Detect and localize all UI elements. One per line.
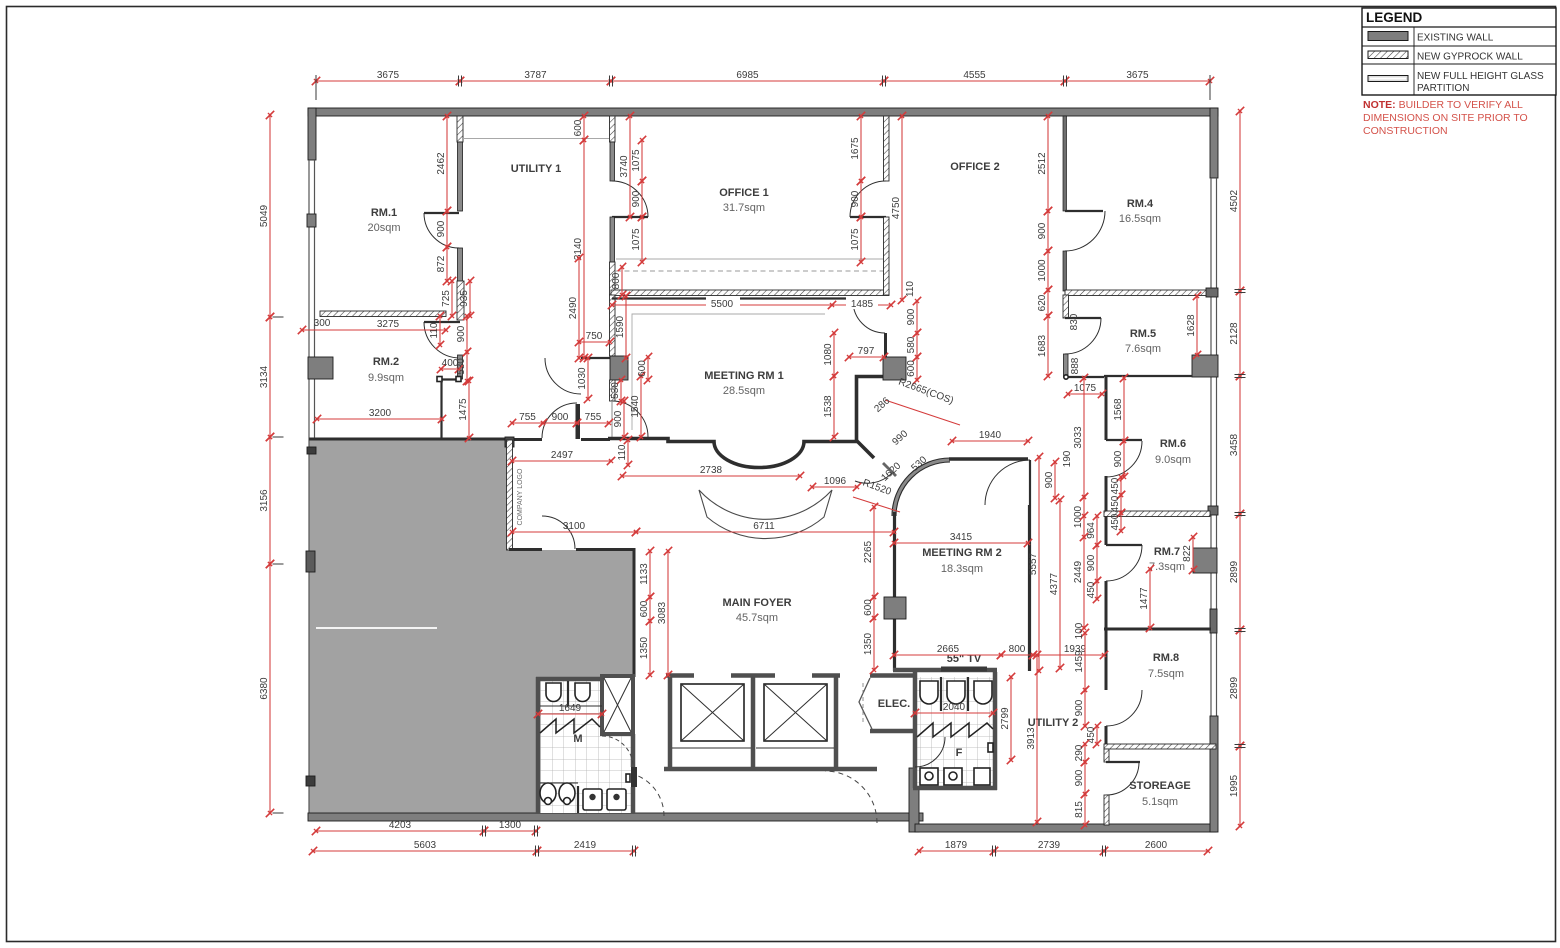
svg-text:900: 900 — [1037, 222, 1048, 239]
svg-text:OFFICE 1: OFFICE 1 — [719, 187, 769, 199]
svg-text:3200: 3200 — [369, 408, 392, 419]
svg-text:1538: 1538 — [823, 395, 834, 418]
svg-text:3740: 3740 — [619, 155, 630, 178]
svg-text:2419: 2419 — [574, 840, 597, 851]
svg-text:1649: 1649 — [559, 703, 582, 714]
svg-text:935: 935 — [459, 290, 470, 307]
svg-text:888: 888 — [1070, 357, 1081, 374]
svg-text:MEETING RM 2: MEETING RM 2 — [922, 547, 1001, 559]
svg-text:1475: 1475 — [458, 398, 469, 421]
svg-text:110: 110 — [429, 322, 440, 338]
svg-text:1477: 1477 — [1139, 587, 1150, 610]
svg-text:4203: 4203 — [389, 820, 412, 831]
svg-text:3458: 3458 — [1229, 433, 1240, 456]
svg-text:LEGEND: LEGEND — [1366, 10, 1423, 25]
svg-text:3033: 3033 — [1073, 426, 1084, 449]
svg-text:UTILITY 1: UTILITY 1 — [511, 163, 562, 175]
svg-text:5557: 5557 — [1028, 552, 1039, 575]
svg-text:3913: 3913 — [1026, 727, 1037, 750]
svg-text:RM.1: RM.1 — [371, 207, 397, 219]
svg-text:9.0sqm: 9.0sqm — [1155, 454, 1191, 466]
svg-text:MAIN FOYER: MAIN FOYER — [722, 597, 791, 609]
svg-text:EXISTING WALL: EXISTING WALL — [1417, 33, 1494, 44]
svg-text:3100: 3100 — [563, 521, 586, 532]
svg-text:18.3sqm: 18.3sqm — [941, 563, 983, 575]
svg-text:CONSTRUCTION: CONSTRUCTION — [1363, 125, 1448, 137]
svg-text:110: 110 — [617, 444, 628, 460]
svg-text:1133: 1133 — [639, 563, 650, 585]
svg-text:2512: 2512 — [1037, 152, 1048, 175]
svg-text:1096: 1096 — [824, 476, 847, 487]
svg-text:2040: 2040 — [943, 702, 966, 713]
svg-text:5.1sqm: 5.1sqm — [1142, 796, 1178, 808]
svg-text:900: 900 — [1074, 769, 1085, 786]
svg-text:1590: 1590 — [615, 315, 626, 338]
svg-text:900: 900 — [613, 410, 624, 427]
svg-text:1030: 1030 — [577, 367, 588, 390]
svg-text:2449: 2449 — [1073, 560, 1084, 583]
svg-text:2600: 2600 — [1145, 840, 1168, 851]
svg-text:1628: 1628 — [1186, 314, 1197, 337]
svg-text:1075: 1075 — [631, 149, 642, 172]
svg-text:PARTITION: PARTITION — [1417, 83, 1469, 94]
svg-text:2497: 2497 — [551, 450, 574, 461]
svg-text:900: 900 — [1086, 554, 1097, 571]
svg-text:5049: 5049 — [259, 204, 270, 227]
svg-text:4502: 4502 — [1229, 189, 1240, 212]
svg-text:1350: 1350 — [639, 636, 650, 659]
svg-text:755: 755 — [585, 412, 602, 423]
svg-text:755: 755 — [519, 412, 536, 423]
svg-text:900: 900 — [456, 325, 467, 342]
svg-text:1675: 1675 — [850, 137, 861, 160]
svg-text:28.5sqm: 28.5sqm — [723, 385, 765, 397]
svg-text:RM.4: RM.4 — [1127, 198, 1154, 210]
svg-text:1940: 1940 — [979, 430, 1002, 441]
svg-text:7.3sqm: 7.3sqm — [1149, 561, 1185, 573]
svg-text:M: M — [573, 733, 582, 745]
svg-text:2665: 2665 — [937, 644, 960, 655]
svg-text:2899: 2899 — [1229, 560, 1240, 583]
svg-text:600: 600 — [639, 600, 650, 617]
svg-text:RM.8: RM.8 — [1153, 652, 1179, 664]
svg-text:3156: 3156 — [259, 489, 270, 512]
svg-text:900: 900 — [436, 220, 447, 237]
svg-text:800: 800 — [611, 272, 622, 289]
svg-text:530: 530 — [610, 382, 621, 399]
svg-text:900: 900 — [1074, 699, 1085, 716]
svg-text:750: 750 — [586, 331, 603, 342]
svg-text:4555: 4555 — [963, 70, 986, 81]
svg-text:RM.7: RM.7 — [1154, 546, 1180, 558]
svg-text:3675: 3675 — [1126, 70, 1149, 81]
svg-text:2899: 2899 — [1229, 676, 1240, 699]
svg-text:20sqm: 20sqm — [367, 222, 400, 234]
svg-text:450: 450 — [1110, 477, 1121, 494]
svg-text:OFFICE 2: OFFICE 2 — [950, 161, 1000, 173]
svg-text:600: 600 — [906, 360, 917, 377]
svg-text:3083: 3083 — [657, 601, 668, 624]
svg-text:1683: 1683 — [1037, 334, 1048, 357]
svg-text:3275: 3275 — [377, 319, 400, 330]
svg-text:6380: 6380 — [259, 677, 270, 700]
svg-text:725: 725 — [441, 290, 452, 307]
svg-text:900: 900 — [1113, 450, 1124, 467]
svg-text:2799: 2799 — [1000, 707, 1011, 730]
svg-text:NEW GYPROCK WALL: NEW GYPROCK WALL — [1417, 52, 1523, 63]
svg-text:2265: 2265 — [863, 540, 874, 563]
svg-text:COMPANY LOGO: COMPANY LOGO — [517, 468, 524, 525]
svg-text:RM.5: RM.5 — [1130, 328, 1156, 340]
svg-text:7.5sqm: 7.5sqm — [1148, 668, 1184, 680]
svg-text:964: 964 — [1086, 522, 1097, 539]
svg-text:NOTE: BUILDER TO VERIFY ALL: NOTE: BUILDER TO VERIFY ALL — [1363, 99, 1523, 111]
svg-text:1075: 1075 — [631, 228, 642, 251]
svg-text:UTILITY 2: UTILITY 2 — [1028, 717, 1079, 729]
svg-text:797: 797 — [858, 346, 875, 357]
svg-text:800: 800 — [1009, 644, 1026, 655]
svg-text:1350: 1350 — [863, 632, 874, 655]
svg-text:6711: 6711 — [753, 521, 775, 532]
svg-text:7.6sqm: 7.6sqm — [1125, 343, 1161, 355]
svg-text:3415: 3415 — [950, 532, 973, 543]
svg-text:NEW FULL HEIGHT GLASS: NEW FULL HEIGHT GLASS — [1417, 71, 1544, 82]
svg-text:815: 815 — [1074, 801, 1085, 818]
svg-text:6985: 6985 — [736, 70, 759, 81]
svg-text:1000: 1000 — [1037, 259, 1048, 282]
svg-text:3675: 3675 — [377, 70, 400, 81]
svg-text:2490: 2490 — [568, 296, 579, 319]
svg-text:RM.6: RM.6 — [1160, 438, 1186, 450]
svg-text:580: 580 — [906, 336, 917, 353]
svg-text:1485: 1485 — [851, 299, 874, 310]
svg-text:300: 300 — [314, 318, 331, 329]
svg-text:4377: 4377 — [1049, 572, 1060, 595]
svg-text:600: 600 — [863, 599, 874, 616]
svg-text:STOREAGE: STOREAGE — [1129, 780, 1191, 792]
svg-text:530: 530 — [456, 358, 467, 375]
svg-text:45.7sqm: 45.7sqm — [736, 612, 778, 624]
svg-text:1080: 1080 — [823, 343, 834, 366]
svg-text:RM.2: RM.2 — [373, 356, 399, 368]
svg-text:450: 450 — [1110, 495, 1121, 512]
svg-text:4750: 4750 — [891, 196, 902, 219]
svg-text:900: 900 — [906, 308, 917, 325]
svg-text:600: 600 — [573, 119, 584, 136]
svg-text:1540: 1540 — [630, 395, 641, 418]
svg-text:2739: 2739 — [1038, 840, 1061, 851]
svg-text:830: 830 — [1069, 313, 1080, 330]
svg-text:1879: 1879 — [945, 840, 968, 851]
svg-text:620: 620 — [1037, 294, 1048, 311]
svg-text:16.5sqm: 16.5sqm — [1119, 213, 1161, 225]
svg-text:3787: 3787 — [524, 70, 547, 81]
svg-text:DIMENSIONS ON SITE PRIOR TO: DIMENSIONS ON SITE PRIOR TO — [1363, 112, 1528, 124]
svg-text:1075: 1075 — [1074, 383, 1097, 394]
svg-text:F: F — [956, 747, 963, 759]
svg-text:822: 822 — [1182, 545, 1193, 562]
svg-text:290: 290 — [1074, 744, 1085, 761]
svg-text:190: 190 — [1062, 450, 1073, 467]
svg-text:1075: 1075 — [850, 228, 861, 251]
svg-text:600: 600 — [637, 360, 648, 377]
svg-text:31.7sqm: 31.7sqm — [723, 202, 765, 214]
svg-text:900: 900 — [850, 190, 861, 207]
svg-text:1995: 1995 — [1229, 774, 1240, 797]
svg-text:MEETING RM 1: MEETING RM 1 — [704, 370, 783, 382]
svg-text:3134: 3134 — [259, 365, 270, 388]
svg-text:900: 900 — [631, 190, 642, 207]
svg-text:1300: 1300 — [499, 820, 522, 831]
svg-text:2128: 2128 — [1229, 322, 1240, 345]
svg-text:ELEC.: ELEC. — [878, 698, 910, 710]
svg-text:2738: 2738 — [700, 465, 723, 476]
svg-text:1459: 1459 — [1074, 650, 1085, 673]
svg-text:100: 100 — [1074, 622, 1085, 639]
svg-text:450: 450 — [1086, 581, 1097, 598]
svg-text:5603: 5603 — [414, 840, 437, 851]
svg-text:900: 900 — [1044, 471, 1055, 488]
svg-text:900: 900 — [552, 412, 569, 423]
svg-text:450: 450 — [1110, 513, 1121, 530]
svg-text:1568: 1568 — [1113, 398, 1124, 421]
svg-text:110: 110 — [905, 281, 916, 297]
svg-text:2462: 2462 — [436, 152, 447, 175]
svg-text:9.9sqm: 9.9sqm — [368, 372, 404, 384]
svg-text:5500: 5500 — [711, 299, 734, 310]
svg-text:872: 872 — [436, 255, 447, 272]
